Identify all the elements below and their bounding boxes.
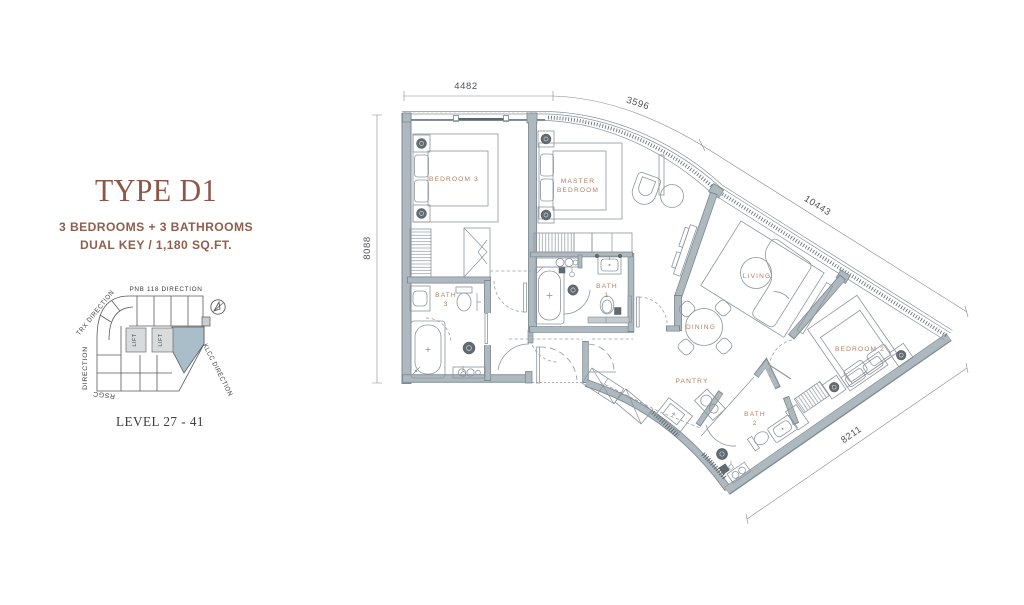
svg-text:PANTRY: PANTRY [675, 378, 708, 385]
svg-text:LIFT: LIFT [132, 333, 138, 346]
svg-text:1: 1 [605, 292, 610, 299]
svg-text:8088: 8088 [362, 236, 373, 260]
svg-text:3 BEDROOMS + 3 BATHROOMS: 3 BEDROOMS + 3 BATHROOMS [59, 221, 253, 234]
svg-text:10443: 10443 [802, 193, 833, 218]
svg-text:DINING: DINING [686, 324, 716, 331]
svg-text:2: 2 [753, 420, 758, 427]
svg-text:DUAL KEY / 1,180 SQ.FT.: DUAL KEY / 1,180 SQ.FT. [80, 239, 232, 252]
svg-text:TYPE D1: TYPE D1 [95, 172, 217, 208]
svg-text:3596: 3596 [625, 95, 651, 113]
svg-text:DIRECTION: DIRECTION [82, 346, 89, 390]
svg-text:BATH: BATH [435, 292, 457, 299]
svg-text:MASTER: MASTER [561, 178, 595, 185]
svg-text:LIVING: LIVING [743, 273, 772, 280]
svg-text:LIFT: LIFT [158, 333, 164, 346]
svg-text:PNB 118 DIRECTION: PNB 118 DIRECTION [130, 286, 203, 293]
svg-text:BEDROOM 2: BEDROOM 2 [835, 346, 885, 353]
svg-text:KLCC DIRECTION: KLCC DIRECTION [201, 343, 234, 398]
svg-text:3: 3 [444, 301, 449, 308]
svg-text:BEDROOM: BEDROOM [557, 187, 599, 194]
svg-text:BEDROOM 3: BEDROOM 3 [429, 176, 479, 183]
svg-text:LEVEL 27 - 41: LEVEL 27 - 41 [116, 415, 204, 430]
svg-text:BATH: BATH [596, 283, 618, 290]
svg-text:8211: 8211 [839, 424, 864, 446]
svg-text:BATH: BATH [744, 411, 766, 418]
svg-text:4482: 4482 [454, 81, 478, 92]
